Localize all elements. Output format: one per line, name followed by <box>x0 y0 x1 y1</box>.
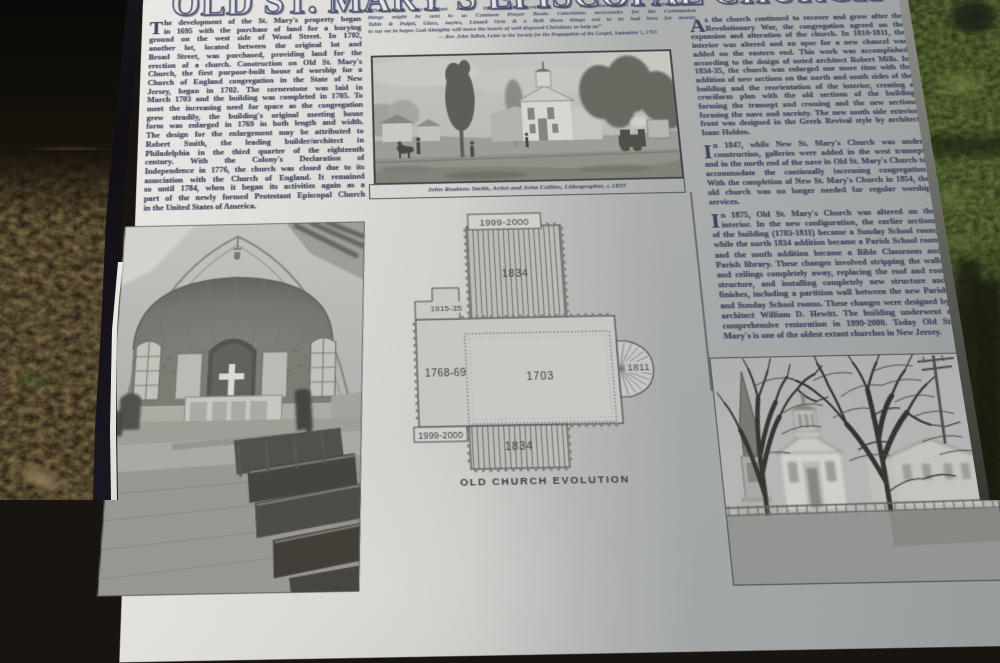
svg-text:1915-35: 1915-35 <box>430 303 462 314</box>
svg-text:1811: 1811 <box>627 361 651 373</box>
svg-text:1834: 1834 <box>505 440 534 454</box>
svg-text:1999-2000: 1999-2000 <box>479 217 529 229</box>
svg-text:1703: 1703 <box>526 370 555 383</box>
svg-text:1834: 1834 <box>501 268 529 281</box>
svg-text:1768-69: 1768-69 <box>425 367 467 379</box>
svg-text:1999-2000: 1999-2000 <box>418 430 464 442</box>
